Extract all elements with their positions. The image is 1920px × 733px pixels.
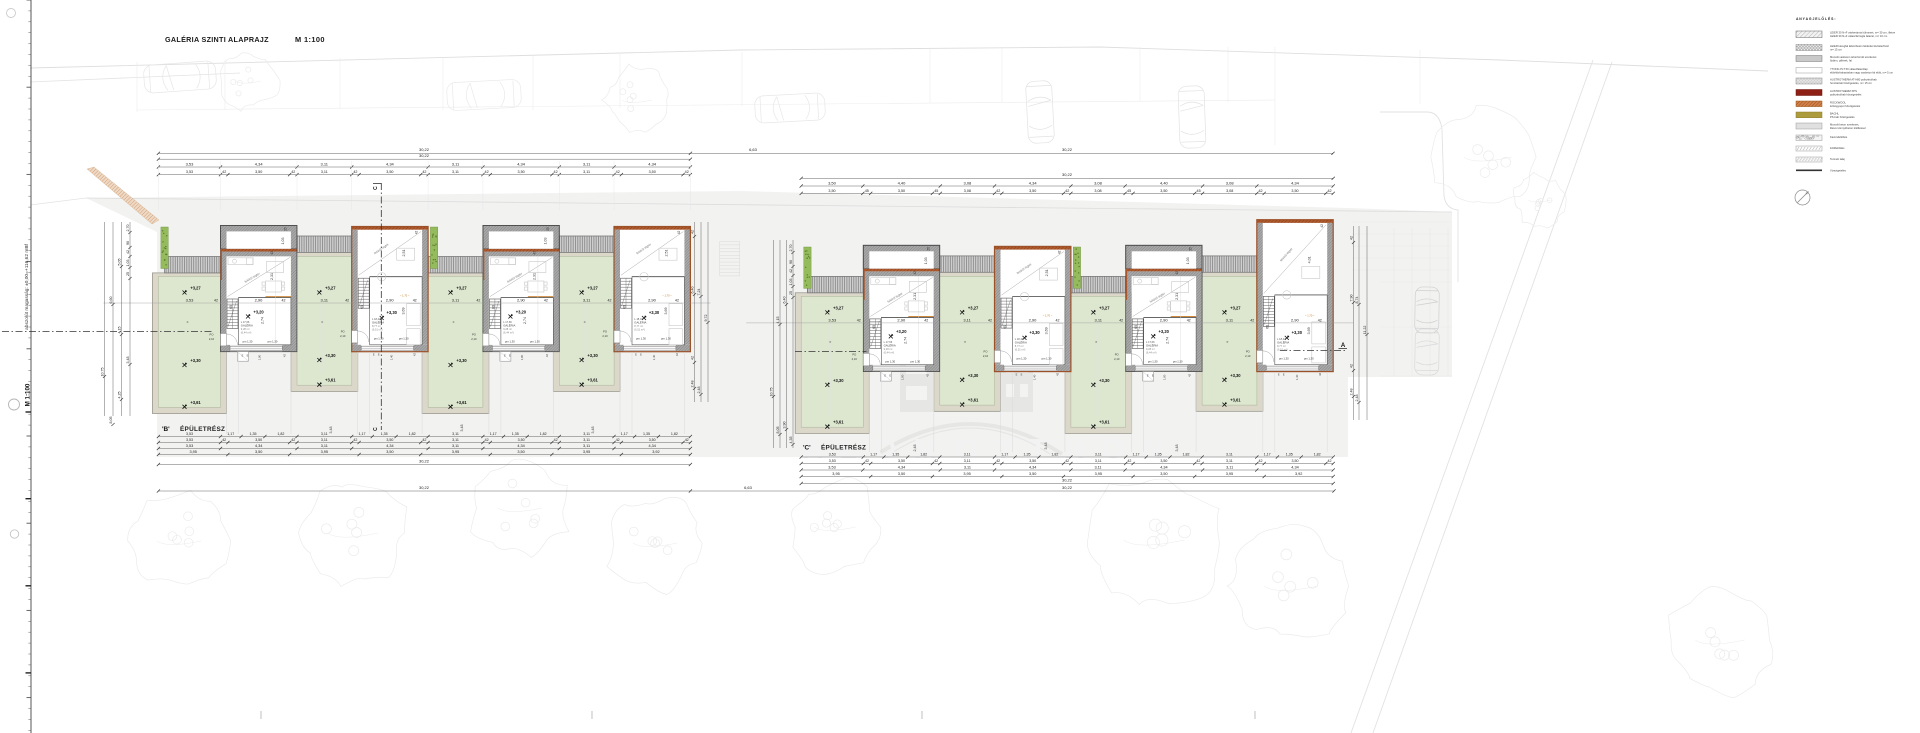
svg-text:3,95: 3,95 (1226, 472, 1233, 476)
svg-text:3,95: 3,95 (452, 450, 459, 454)
svg-text:30,22: 30,22 (419, 458, 430, 463)
svg-text:60: 60 (229, 305, 233, 309)
svg-text:3,95: 3,95 (963, 472, 970, 476)
svg-text:1,80: 1,80 (900, 374, 904, 380)
svg-text:42: 42 (291, 438, 295, 442)
svg-text:4,34: 4,34 (1291, 465, 1298, 469)
svg-text:3,50: 3,50 (898, 459, 905, 463)
svg-text:+3,27: +3,27 (1230, 305, 1241, 310)
svg-text:3,95: 3,95 (832, 472, 839, 476)
svg-text:90: 90 (789, 260, 793, 264)
svg-text:4,34: 4,34 (255, 444, 262, 448)
svg-text:25: 25 (789, 291, 793, 295)
svg-text:4,25: 4,25 (117, 392, 121, 399)
svg-text:3,08: 3,08 (964, 180, 973, 185)
svg-text:42: 42 (1250, 318, 1254, 322)
svg-text:42: 42 (345, 299, 349, 303)
svg-text:42: 42 (685, 438, 689, 442)
svg-text:8,77 m²: 8,77 m² (1277, 344, 1286, 348)
svg-text:42: 42 (1320, 224, 1324, 228)
svg-text:42: 42 (925, 373, 929, 377)
svg-text:3,08: 3,08 (1094, 189, 1101, 193)
svg-text:3,11: 3,11 (1226, 465, 1233, 469)
svg-text:3,48: 3,48 (1175, 445, 1179, 452)
svg-text:3,48: 3,48 (1044, 443, 1048, 450)
svg-text:2,90: 2,90 (897, 317, 906, 322)
svg-text:3,48: 3,48 (329, 427, 333, 434)
svg-text:1,82: 1,82 (1314, 452, 1321, 456)
svg-text:4,34: 4,34 (649, 444, 656, 448)
svg-text:3,11: 3,11 (1226, 317, 1234, 322)
svg-text:(6,44 m²): (6,44 m²) (503, 331, 514, 335)
svg-text:3,50: 3,50 (898, 472, 905, 476)
svg-text:4,35: 4,35 (789, 437, 793, 444)
svg-text:3,50: 3,50 (1291, 189, 1298, 193)
svg-text:2,48: 2,48 (913, 445, 917, 452)
svg-text:42: 42 (126, 250, 130, 254)
svg-text:2,51: 2,51 (402, 250, 406, 257)
svg-text:3,90: 3,90 (782, 422, 786, 429)
svg-text:3,11: 3,11 (583, 161, 591, 166)
svg-text:LEIER 30 N+F válaszfal tégla f: LEIER 30 N+F válaszfal tégla falazat, m=… (1830, 34, 1888, 38)
svg-text:30,22: 30,22 (1062, 485, 1073, 490)
svg-text:pm 1,30: pm 1,30 (505, 340, 515, 344)
svg-text:6,63: 6,63 (744, 485, 753, 490)
svg-text:2,70: 2,70 (126, 225, 130, 232)
svg-text:GALÉRIA: GALÉRIA (884, 342, 896, 347)
svg-text:Monolit vasbeton teherhordó sz: Monolit vasbeton teherhordó szerkezet (1830, 55, 1877, 59)
svg-text:3,50: 3,50 (1029, 472, 1036, 476)
svg-text:E: E (504, 354, 506, 358)
svg-text:25: 25 (284, 227, 288, 231)
svg-text:4,40: 4,40 (898, 180, 907, 185)
svg-text:+3,30: +3,30 (1292, 330, 1303, 335)
svg-text:42: 42 (1327, 189, 1331, 193)
svg-text:E: E (1021, 372, 1023, 376)
svg-text:3,50: 3,50 (386, 438, 393, 442)
svg-text:42: 42 (291, 170, 295, 174)
svg-text:3,50: 3,50 (1029, 459, 1036, 463)
svg-text:1,17: 1,17 (227, 432, 234, 436)
svg-text:PO: PO (984, 349, 988, 353)
svg-text:3,50: 3,50 (1029, 189, 1036, 193)
svg-text:GALÉRIA: GALÉRIA (1146, 342, 1158, 347)
svg-text:kőzetgyapot hőszigetelés: kőzetgyapot hőszigetelés (1830, 104, 1861, 108)
svg-text:E: E (1283, 372, 1285, 376)
svg-text:2,10: 2,10 (340, 334, 346, 338)
svg-text:3,53: 3,53 (186, 438, 193, 442)
svg-text:2,10: 2,10 (602, 334, 608, 338)
svg-text:3,11: 3,11 (321, 161, 329, 166)
svg-text:C: C (373, 186, 379, 190)
svg-text:pm 1,30: pm 1,30 (399, 337, 409, 341)
svg-text:~ 1,70 ~: ~ 1,70 ~ (400, 294, 410, 298)
svg-text:60: 60 (1003, 325, 1007, 329)
svg-text:1,35: 1,35 (1155, 452, 1162, 456)
svg-text:PO: PO (852, 352, 856, 356)
svg-text:4,15: 4,15 (776, 317, 780, 324)
svg-text:3,11: 3,11 (964, 452, 971, 456)
svg-text:60: 60 (872, 325, 876, 329)
svg-text:GALÉRIA: GALÉRIA (1015, 339, 1027, 344)
svg-text:8,05: 8,05 (109, 417, 113, 424)
svg-text:E: E (378, 353, 380, 357)
svg-text:3,11: 3,11 (321, 170, 328, 174)
svg-text:3,11: 3,11 (1226, 452, 1233, 456)
svg-text:3,11: 3,11 (1095, 317, 1103, 322)
svg-text:42: 42 (1065, 189, 1069, 193)
svg-text:3,50: 3,50 (828, 189, 835, 193)
svg-text:42: 42 (1349, 364, 1353, 368)
svg-text:42: 42 (554, 170, 558, 174)
svg-text:E: E (1147, 373, 1149, 377)
svg-text:42: 42 (675, 299, 679, 303)
svg-text:3,95: 3,95 (321, 450, 328, 454)
svg-text:42: 42 (677, 231, 681, 235)
svg-text:+3,27: +3,27 (325, 286, 336, 291)
svg-text:1,03: 1,03 (1186, 257, 1190, 264)
svg-text:9,28 m²: 9,28 m² (1146, 347, 1155, 351)
svg-text:42: 42 (214, 299, 218, 303)
svg-text:1,80: 1,80 (520, 354, 524, 360)
svg-text:2,90: 2,90 (386, 298, 395, 303)
svg-text:ROCKWOOL: ROCKWOOL (1830, 101, 1846, 105)
svg-text:pm 1,30: pm 1,30 (1148, 360, 1158, 364)
svg-text:42: 42 (413, 353, 417, 357)
svg-text:45: 45 (934, 189, 938, 193)
svg-text:3,48: 3,48 (591, 427, 595, 434)
svg-text:3,11: 3,11 (452, 432, 459, 436)
svg-text:4,34: 4,34 (517, 444, 524, 448)
svg-text:3,11: 3,11 (963, 317, 971, 322)
svg-text:2,10: 2,10 (1114, 357, 1120, 361)
svg-text:3,08: 3,08 (1094, 180, 1103, 185)
svg-text:3,11: 3,11 (321, 432, 328, 436)
svg-text:30,22: 30,22 (419, 485, 430, 490)
svg-text:42: 42 (865, 459, 869, 463)
svg-text:'B': 'B' (162, 426, 170, 433)
svg-text:3,11: 3,11 (583, 432, 590, 436)
svg-text:GALÉRIA SZINTI ALAPRAJZ: GALÉRIA SZINTI ALAPRAJZ (165, 35, 269, 44)
svg-text:2,31: 2,31 (270, 273, 274, 280)
svg-text:1,17: 1,17 (1133, 452, 1140, 456)
svg-text:42: 42 (1175, 271, 1179, 275)
svg-text:60: 60 (623, 305, 627, 309)
svg-text:PO: PO (1246, 349, 1250, 353)
svg-text:9,28 m²: 9,28 m² (884, 347, 893, 351)
svg-text:ÉPÜLETRÉSZ: ÉPÜLETRÉSZ (821, 443, 866, 452)
svg-text:3,69: 3,69 (664, 308, 668, 315)
svg-text:3,11: 3,11 (1095, 452, 1102, 456)
svg-text:+3,27: +3,27 (1099, 305, 1110, 310)
svg-text:3,50: 3,50 (518, 438, 525, 442)
svg-text:1,40: 1,40 (1033, 374, 1037, 380)
svg-text:42: 42 (282, 299, 286, 303)
svg-text:C: C (373, 427, 379, 431)
svg-text:42: 42 (1058, 250, 1062, 254)
svg-text:E: E (373, 353, 375, 357)
svg-text:PO: PO (210, 333, 214, 337)
svg-text:+3,20: +3,20 (516, 309, 527, 314)
svg-text:42: 42 (913, 271, 917, 275)
svg-text:1,35: 1,35 (381, 432, 388, 436)
svg-text:3,11: 3,11 (1095, 459, 1102, 463)
svg-text:illetve könnyűbeton kitöltésse: illetve könnyűbeton kitöltéssel (1830, 126, 1866, 130)
svg-text:2,70: 2,70 (789, 245, 793, 252)
svg-text:4,34: 4,34 (255, 161, 264, 166)
svg-text:25: 25 (1189, 247, 1193, 251)
svg-text:90: 90 (126, 241, 130, 245)
svg-text:+3,61: +3,61 (587, 378, 598, 383)
svg-text:45: 45 (1127, 189, 1131, 193)
svg-text:GALÉRIA: GALÉRIA (1277, 339, 1289, 344)
svg-text:42: 42 (690, 230, 694, 234)
svg-text:3,11: 3,11 (1094, 465, 1101, 469)
svg-text:pm 1,30: pm 1,30 (1042, 357, 1052, 361)
svg-text:3,11: 3,11 (583, 438, 590, 442)
svg-text:1,35: 1,35 (643, 432, 650, 436)
svg-text:3,50: 3,50 (518, 170, 525, 174)
svg-text:1,82: 1,82 (671, 432, 678, 436)
svg-text:2,51: 2,51 (665, 250, 669, 257)
svg-text:E: E (889, 373, 891, 377)
svg-text:45: 45 (1197, 189, 1201, 193)
svg-text:3,08: 3,08 (1226, 180, 1235, 185)
svg-text:+3,30: +3,30 (456, 358, 467, 363)
svg-text:42: 42 (544, 299, 548, 303)
svg-text:3,11: 3,11 (964, 459, 971, 463)
svg-text:3,95: 3,95 (190, 450, 197, 454)
svg-text:YTONG PLT 50 válaszfalazólap: YTONG PLT 50 válaszfalazólap (1830, 67, 1868, 71)
svg-text:polisztirolhab hőszigetelés: polisztirolhab hőszigetelés (1830, 93, 1862, 97)
svg-text:PO: PO (1115, 352, 1119, 356)
svg-text:1,35: 1,35 (1286, 452, 1293, 456)
svg-text:E: E (884, 373, 886, 377)
svg-text:GALÉRIA: GALÉRIA (634, 320, 646, 325)
svg-text:8,05: 8,05 (776, 427, 780, 434)
svg-text:1,80: 1,80 (1163, 374, 1167, 380)
svg-text:3,11: 3,11 (321, 438, 328, 442)
svg-text:+3,27: +3,27 (190, 286, 201, 291)
svg-text:pm 1,30: pm 1,30 (1017, 357, 1027, 361)
svg-text:3,53: 3,53 (829, 452, 836, 456)
svg-text:42: 42 (353, 170, 357, 174)
svg-text:42: 42 (1259, 459, 1263, 463)
svg-text:8,77 m²: 8,77 m² (634, 324, 643, 328)
svg-text:+3,61: +3,61 (325, 378, 336, 383)
svg-text:pm 1,30: pm 1,30 (1173, 360, 1183, 364)
svg-text:42: 42 (485, 170, 489, 174)
svg-text:3,50: 3,50 (517, 450, 524, 454)
svg-text:pm 1,30: pm 1,30 (243, 340, 253, 344)
svg-text:M 1:100: M 1:100 (295, 35, 325, 44)
svg-text:3,50: 3,50 (649, 438, 656, 442)
svg-text:4,34: 4,34 (1029, 465, 1036, 469)
svg-text:1,80: 1,80 (258, 354, 262, 360)
svg-text:+3,61: +3,61 (968, 398, 979, 403)
svg-text:+3,30: +3,30 (649, 310, 660, 315)
svg-text:4,34: 4,34 (898, 465, 905, 469)
svg-text:+3,30: +3,30 (587, 353, 598, 358)
svg-text:42: 42 (1056, 372, 1060, 376)
svg-text:42: 42 (1318, 372, 1322, 376)
svg-text:GALÉRIA: GALÉRIA (372, 320, 384, 325)
svg-text:+3,27: +3,27 (968, 305, 979, 310)
svg-text:8,74: 8,74 (1355, 297, 1359, 304)
svg-text:9,28 m²: 9,28 m² (241, 327, 250, 331)
svg-text:3,11: 3,11 (452, 444, 459, 448)
svg-text:+3,30: +3,30 (833, 378, 844, 383)
svg-text:30,22: 30,22 (1062, 172, 1073, 177)
svg-text:+3,27: +3,27 (587, 286, 598, 291)
svg-text:PO: PO (341, 330, 345, 334)
svg-text:pm 1,30: pm 1,30 (1279, 357, 1289, 361)
svg-text:3,53: 3,53 (829, 459, 836, 463)
svg-text:E: E (640, 353, 642, 357)
svg-text:2,90: 2,90 (1029, 317, 1038, 322)
svg-text:42: 42 (1188, 373, 1192, 377)
svg-text:3,11: 3,11 (452, 438, 459, 442)
svg-text:3,50: 3,50 (898, 189, 905, 193)
svg-text:2,90: 2,90 (255, 298, 264, 303)
svg-text:42: 42 (1056, 318, 1060, 322)
svg-text:(6,44 m²): (6,44 m²) (241, 331, 252, 335)
svg-text:4,01: 4,01 (1307, 256, 1311, 263)
svg-text:4,34: 4,34 (386, 161, 395, 166)
svg-text:+3,30: +3,30 (1029, 330, 1040, 335)
svg-text:2,31: 2,31 (532, 273, 536, 280)
svg-text:3,53: 3,53 (828, 465, 835, 469)
svg-text:3,48: 3,48 (126, 357, 130, 364)
svg-text:2,90: 2,90 (1160, 317, 1169, 322)
svg-text:GALÉRIA: GALÉRIA (503, 323, 515, 328)
svg-text:LEIER 30 N+F vázkerámia külmez: LEIER 30 N+F vázkerámia külmezet, m= 30 … (1830, 31, 1896, 35)
svg-text:3,08: 3,08 (964, 189, 971, 193)
svg-text:2,74: 2,74 (261, 317, 265, 324)
svg-text:1,17: 1,17 (870, 452, 877, 456)
svg-text:7,90: 7,90 (1349, 295, 1353, 302)
svg-text:pm 1,30: pm 1,30 (636, 337, 646, 341)
svg-text:2,48: 2,48 (1349, 389, 1353, 396)
svg-text:2,48: 2,48 (697, 387, 701, 394)
svg-text:Vízszigetelés: Vízszigetelés (1830, 168, 1846, 172)
svg-text:30,22: 30,22 (1062, 147, 1073, 152)
svg-text:m= 15 cm: m= 15 cm (1830, 48, 1843, 52)
svg-text:42: 42 (988, 318, 992, 322)
svg-text:1,40: 1,40 (652, 354, 656, 360)
svg-text:1,82: 1,82 (540, 432, 547, 436)
svg-text:+3,20: +3,20 (1159, 329, 1170, 334)
svg-text:42: 42 (413, 299, 417, 303)
svg-text:42: 42 (616, 438, 620, 442)
svg-text:E: E (635, 353, 637, 357)
svg-text:pm 1,30: pm 1,30 (661, 337, 671, 341)
svg-text:42: 42 (1127, 459, 1131, 463)
svg-text:42: 42 (1318, 318, 1322, 322)
svg-text:E: E (1278, 372, 1280, 376)
svg-text:4,34: 4,34 (1029, 180, 1038, 185)
svg-text:3,50: 3,50 (828, 180, 837, 185)
svg-text:+3,30: +3,30 (325, 353, 336, 358)
svg-text:42: 42 (1196, 459, 1200, 463)
svg-text:3,53: 3,53 (186, 298, 195, 303)
svg-text:3,50: 3,50 (1160, 472, 1167, 476)
svg-text:25: 25 (126, 272, 130, 276)
svg-text:3,92: 3,92 (1295, 472, 1302, 476)
svg-text:42: 42 (283, 354, 287, 358)
svg-text:2,51: 2,51 (1045, 269, 1049, 276)
svg-text:1,82: 1,82 (277, 432, 284, 436)
svg-text:3,92: 3,92 (652, 450, 659, 454)
svg-text:Kavicsfeltöltés: Kavicsfeltöltés (1830, 135, 1848, 139)
svg-text:8,77 m²: 8,77 m² (372, 324, 381, 328)
svg-text:30,22: 30,22 (1062, 477, 1073, 482)
svg-text:E: E (1152, 373, 1154, 377)
svg-text:2,74: 2,74 (1166, 337, 1170, 344)
svg-text:1,17: 1,17 (1001, 452, 1008, 456)
svg-text:1,82: 1,82 (920, 452, 927, 456)
svg-text:30,22: 30,22 (419, 147, 430, 152)
svg-text:45: 45 (865, 189, 869, 193)
svg-text:42: 42 (1328, 459, 1332, 463)
svg-text:pm 1,30: pm 1,30 (530, 340, 540, 344)
svg-text:+3,61: +3,61 (833, 420, 844, 425)
svg-text:~ 1,70 ~: ~ 1,70 ~ (662, 294, 672, 298)
svg-text:60: 60 (1134, 325, 1138, 329)
svg-text:42: 42 (554, 438, 558, 442)
svg-text:42: 42 (222, 438, 226, 442)
svg-text:+3,61: +3,61 (1099, 420, 1110, 425)
svg-text:AUSTROTHERM XPS: AUSTROTHERM XPS (1830, 89, 1857, 93)
svg-text:42: 42 (934, 459, 938, 463)
svg-text:pm 1,30: pm 1,30 (268, 340, 278, 344)
svg-text:3,50: 3,50 (386, 450, 393, 454)
svg-text:10,75: 10,75 (100, 368, 104, 377)
svg-text:3,95: 3,95 (1095, 472, 1102, 476)
svg-text:+3,61: +3,61 (1230, 398, 1241, 403)
svg-text:30,22: 30,22 (419, 153, 430, 158)
svg-text:25: 25 (926, 247, 930, 251)
svg-text:2,10: 2,10 (983, 354, 989, 358)
svg-text:1,40: 1,40 (1295, 374, 1299, 380)
svg-text:4,34: 4,34 (386, 444, 393, 448)
svg-text:+3,30: +3,30 (190, 358, 201, 363)
svg-text:42: 42 (924, 318, 928, 322)
svg-text:42: 42 (222, 170, 226, 174)
svg-text:2,90: 2,90 (1291, 317, 1300, 322)
svg-text:42: 42 (545, 354, 549, 358)
svg-text:1,35: 1,35 (1024, 452, 1031, 456)
svg-text:'C': 'C' (803, 445, 811, 452)
svg-text:4,34: 4,34 (517, 161, 526, 166)
svg-text:1,03: 1,03 (281, 238, 285, 245)
svg-text:(6,51 m²): (6,51 m²) (634, 328, 645, 332)
svg-text:3,11: 3,11 (1226, 459, 1233, 463)
svg-text:1,35: 1,35 (512, 432, 519, 436)
svg-text:3,48: 3,48 (460, 425, 464, 432)
svg-text:42: 42 (685, 170, 689, 174)
svg-text:3,50: 3,50 (1160, 459, 1167, 463)
svg-text:3,11: 3,11 (583, 298, 591, 303)
svg-text:42: 42 (353, 438, 357, 442)
svg-text:5,05: 5,05 (117, 259, 121, 266)
svg-text:1,17: 1,17 (490, 432, 497, 436)
svg-text:A N Y A G J E L Ö L É S :: A N Y A G J E L Ö L É S : (1796, 16, 1836, 21)
svg-text:3,69: 3,69 (402, 308, 406, 315)
svg-text:E: E (509, 354, 511, 358)
svg-text:3,53: 3,53 (186, 161, 195, 166)
svg-text:(6,44 m²): (6,44 m²) (884, 350, 895, 354)
